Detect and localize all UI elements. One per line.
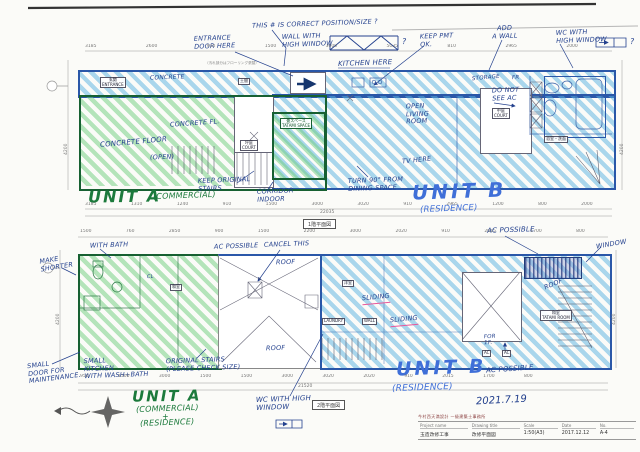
tb-value-project: 玉造改修工事 xyxy=(420,429,468,438)
title-block: 今村西天満設計 一級建築士事務所 Project name 玉造改修工事 Dra… xyxy=(418,414,636,440)
plan2-unit-a-area xyxy=(78,254,222,370)
room-bedroom-label: 洋室 xyxy=(342,280,354,287)
plan1-total-dimension: 22035 xyxy=(320,210,334,215)
title-block-firm: 今村西天満設計 一級建築士事務所 xyxy=(418,414,636,422)
room-court2-label: 中庭 COURT xyxy=(492,108,510,119)
room-wall-label: WALL xyxy=(362,318,377,325)
drawing-sheet: THIS # IS CORRECT POSITION/SIZE ? WALL W… xyxy=(0,0,640,452)
plan1-right-dimension: 4200 xyxy=(620,144,625,155)
scan-edge-line xyxy=(28,4,596,8)
room-doma-label: 土間 xyxy=(238,78,250,85)
note-wc-high-window-2f: WC WITH HIGH WINDOW xyxy=(256,394,312,412)
plan1-unit-b-label: UNIT B xyxy=(412,177,507,204)
plan1-entrance-notch xyxy=(290,72,326,94)
note-for-1f: FOR 1F. xyxy=(484,334,496,347)
plan1-left-dimension: 4200 xyxy=(64,144,69,155)
note-cancel-this: CANCEL THIS xyxy=(264,240,310,249)
note-with-bath: WITH BATH xyxy=(90,241,129,250)
room-entrance-label: 玄関 ENTRANCE xyxy=(100,77,126,88)
note-cl: CL xyxy=(147,275,154,281)
note-ac-possible-left: AC POSSIBLE xyxy=(214,242,259,251)
room-washitsu-label: 和室 xyxy=(170,284,182,291)
compass-icon xyxy=(54,396,125,428)
room-bath-label: 浴室・洗面 xyxy=(544,136,568,143)
room-court1-label: 坪庭 COURT xyxy=(240,140,258,151)
plan1-bottom-dimensions: 3185 1310 1240 910 1500 3000 3020 910 29… xyxy=(85,202,612,207)
note-window: WINDOW xyxy=(596,238,628,251)
plan2-right-dimension: 4200 xyxy=(612,314,617,325)
ac-box-2: AC xyxy=(502,350,511,357)
note-make-shorter: MAKE SHORTER xyxy=(39,254,74,274)
note-roof-low: ROOF xyxy=(266,345,286,353)
note-do-not-see-ac: DO NOT SEE AC xyxy=(492,87,520,103)
plan2-unit-a-sub2: (RESIDENCE) xyxy=(140,417,195,428)
plan1-sheet-tag: 1階平面図 xyxy=(303,219,336,229)
note-concrete-strip: CONCRETE xyxy=(150,73,185,81)
note-open-paren: (OPEN) xyxy=(150,154,175,162)
note-roof-mid: ROOF xyxy=(276,259,296,267)
note-wc-high-window: WC WITH HIGH WINDOW xyxy=(556,28,607,45)
plan2-top-dimensions: 1500 760 2850 900 1500 2200 3000 2020 91… xyxy=(80,229,606,234)
plan2-left-dimension: 4200 xyxy=(56,314,61,325)
tb-value-drawing: 改修平面図 xyxy=(472,429,520,438)
note-original-stairs: ORIGINAL STAIRS (PLEASE CHECK SIZE) xyxy=(166,356,241,374)
room-laundry-label: LAUNDRY xyxy=(322,318,345,325)
room-tatami-room-label: 和室 TATAMI ROOM xyxy=(540,310,572,321)
note-turn-dining: TURN 90° FROM DINING SPACE xyxy=(348,176,404,193)
plan2-bottom-dimensions: 950 1500 3000 1500 1500 3000 3020 2020 9… xyxy=(80,374,560,379)
note-this-correct: THIS # IS CORRECT POSITION/SIZE ? xyxy=(252,17,412,30)
grid-bubble-icon xyxy=(43,81,68,273)
tb-value-no: A-4 xyxy=(600,429,634,436)
tb-value-scale: 1:50(A3) xyxy=(524,429,558,436)
handwritten-date: 2021.7.19 xyxy=(476,394,527,408)
note-wc-question: ? xyxy=(630,37,635,47)
note-kitchen-here: KITCHEN HERE xyxy=(338,58,393,68)
tb-value-date: 2017.12.12 xyxy=(562,429,596,436)
plan2-total-dimension: 21520 xyxy=(298,384,312,389)
room-tatami-space-label: 畳スペース TATAMI SPACE xyxy=(280,118,312,129)
plan1-bathroom-area xyxy=(544,76,606,138)
plan2-roof-over-court xyxy=(462,272,522,342)
note-add-a-wall: ADD A WALL xyxy=(492,25,518,41)
note-fr: FR xyxy=(512,75,520,82)
note-open-living-room: OPEN LIVING ROOM xyxy=(406,103,430,127)
note-small-door: SMALL DOOR FOR MAINTENANCE. xyxy=(27,357,82,386)
plan1-top-dimensions: 3185 2600 910 1500 3000 5035 810 2965 20… xyxy=(85,44,612,49)
plan2-unit-b-sub: (RESIDENCE) xyxy=(392,382,453,395)
plan2-sheet-tag: 2階平面図 xyxy=(312,400,345,410)
note-flooring-print: （汚れ部分はフローリング張替） xyxy=(205,61,259,66)
plan2-balcony xyxy=(524,257,582,279)
plan1-unit-a-sub: (COMMERCIAL) xyxy=(153,190,216,202)
